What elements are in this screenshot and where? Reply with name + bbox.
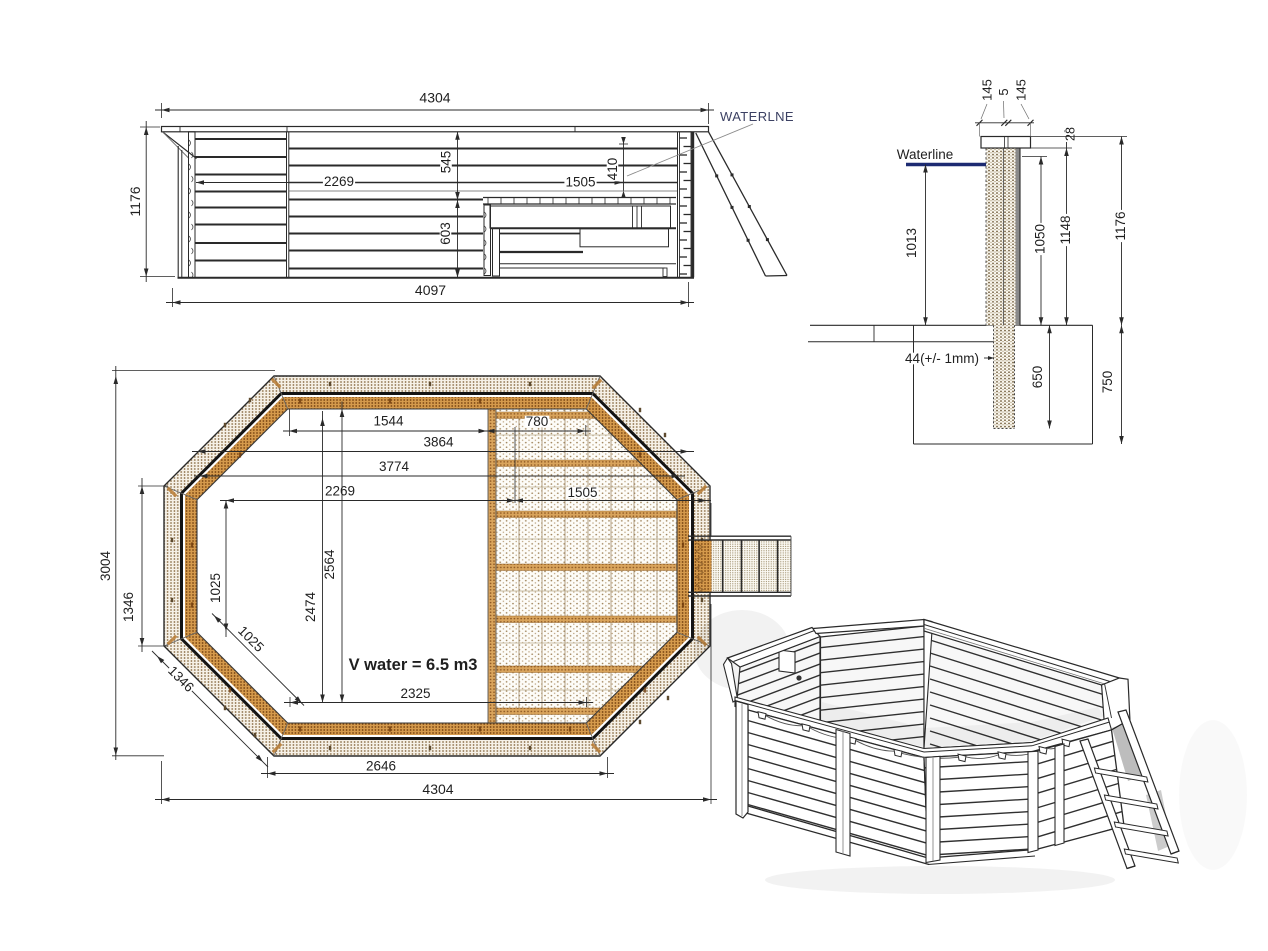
svg-text:V water = 6.5 m3: V water = 6.5 m3 [349,656,478,674]
svg-text:1013: 1013 [904,228,919,258]
svg-text:1176: 1176 [1113,211,1128,240]
svg-text:545: 545 [439,151,454,174]
svg-text:1346: 1346 [121,592,136,622]
svg-text:4097: 4097 [415,282,446,298]
svg-text:3864: 3864 [423,435,454,450]
svg-text:WATERLNE: WATERLNE [720,109,794,124]
svg-text:2564: 2564 [322,549,337,580]
svg-text:750: 750 [1100,371,1115,394]
svg-text:410: 410 [605,158,620,181]
svg-text:2646: 2646 [366,759,396,774]
svg-text:1050: 1050 [1033,224,1048,254]
svg-text:1505: 1505 [565,175,595,190]
svg-text:5: 5 [996,88,1011,95]
svg-text:2269: 2269 [324,174,354,189]
svg-text:145: 145 [1014,79,1029,101]
svg-text:780: 780 [526,414,549,429]
svg-text:Waterline: Waterline [897,147,954,162]
svg-text:3004: 3004 [98,550,113,581]
svg-text:1148: 1148 [1058,215,1073,244]
svg-text:1505: 1505 [567,485,597,500]
svg-text:28: 28 [1064,127,1078,141]
svg-text:4304: 4304 [419,90,450,106]
svg-text:3774: 3774 [379,459,410,474]
svg-text:2269: 2269 [325,484,355,499]
svg-text:603: 603 [438,222,453,245]
svg-text:650: 650 [1030,366,1045,389]
svg-text:1025: 1025 [208,573,223,603]
svg-text:1544: 1544 [373,414,404,429]
svg-text:4304: 4304 [422,781,453,797]
svg-text:2325: 2325 [400,686,430,701]
svg-text:44(+/- 1mm): 44(+/- 1mm) [905,351,979,366]
svg-text:2474: 2474 [303,591,318,622]
svg-text:1176: 1176 [127,186,143,216]
svg-text:145: 145 [980,79,995,101]
